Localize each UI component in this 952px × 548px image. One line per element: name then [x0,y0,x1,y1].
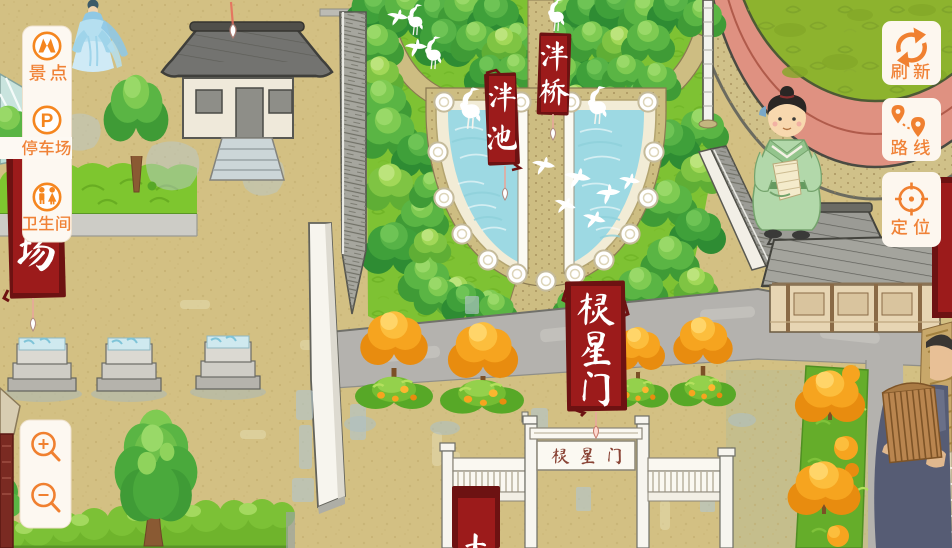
svg-text:P: P [41,111,54,132]
